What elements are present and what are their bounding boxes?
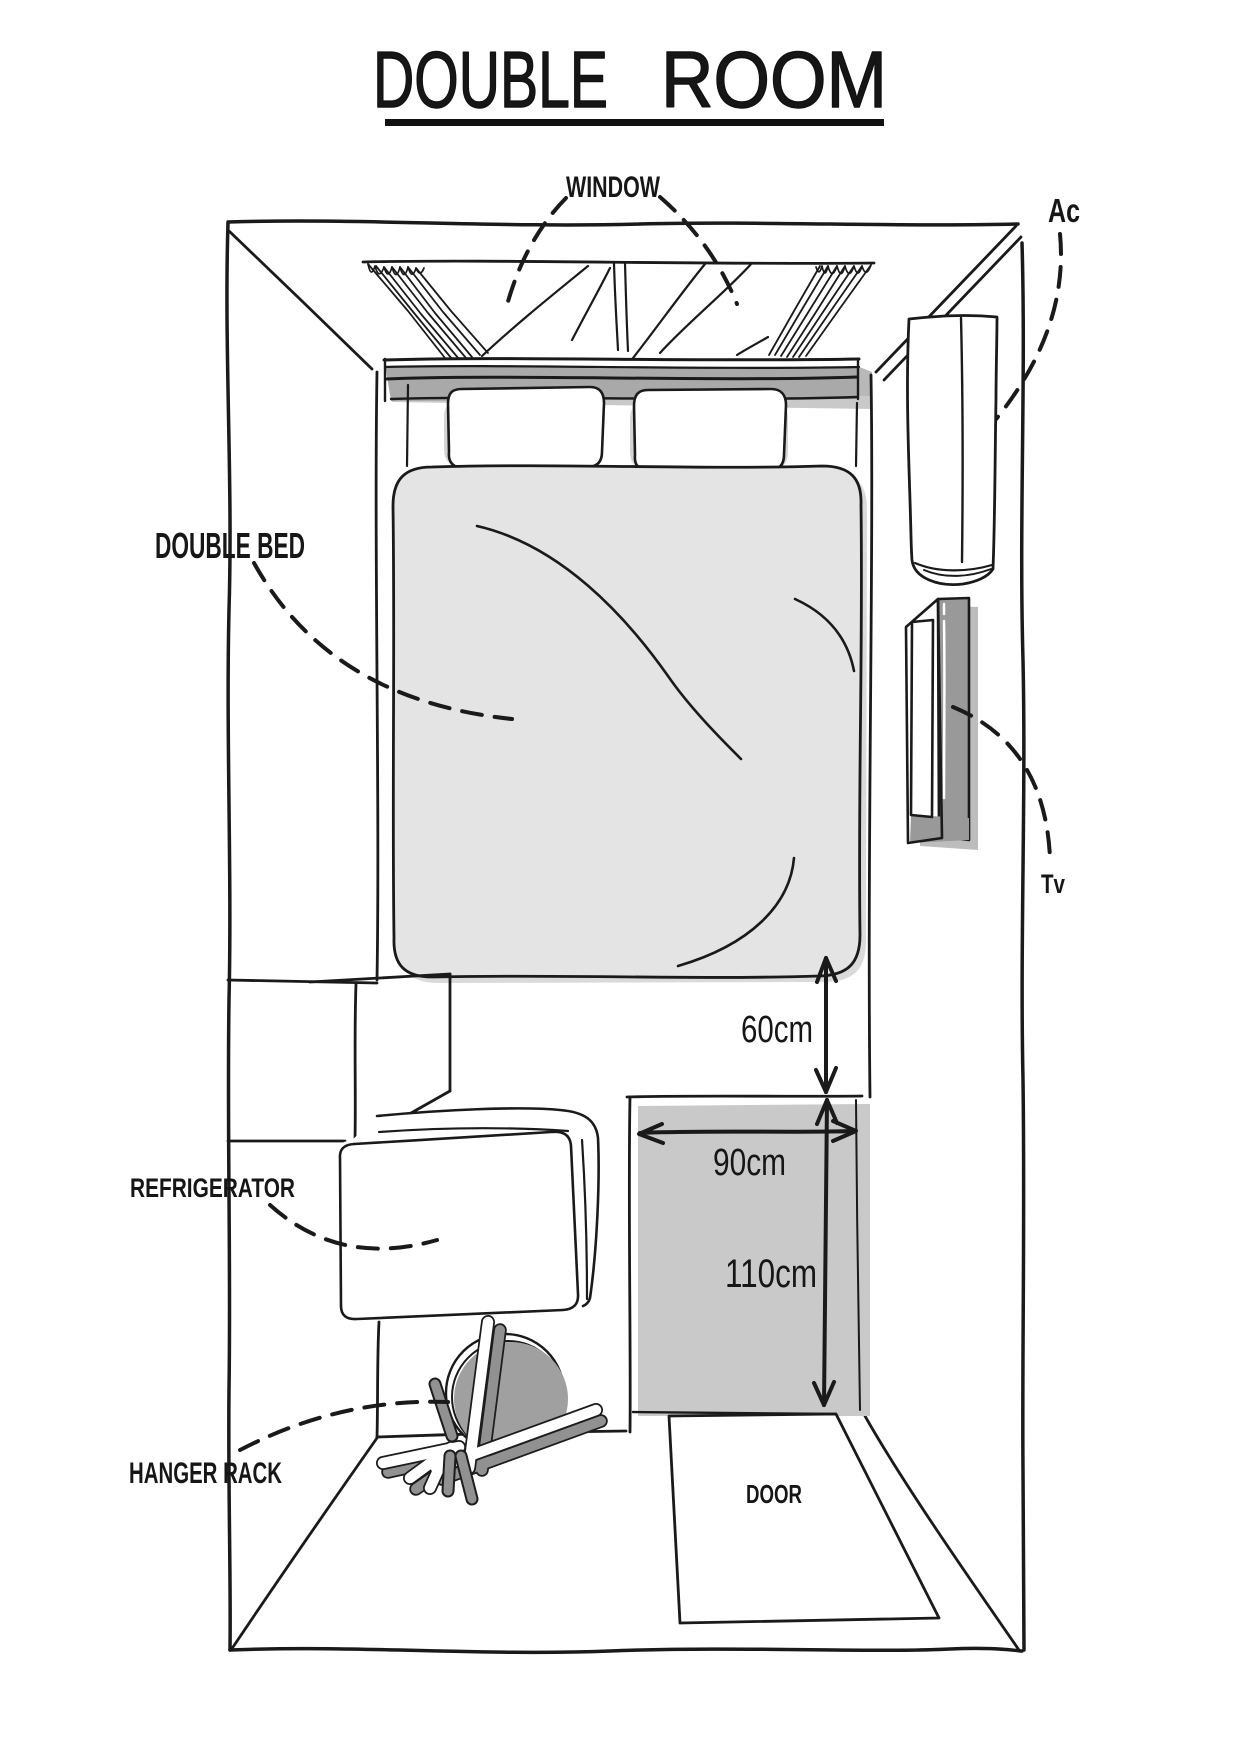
svg-text:DOUBLE: DOUBLE <box>373 35 608 124</box>
svg-text:DOUBLE BED: DOUBLE BED <box>155 525 305 566</box>
svg-text:HANGER RACK: HANGER RACK <box>129 1457 282 1490</box>
svg-text:WINDOW: WINDOW <box>566 171 660 204</box>
svg-text:60cm: 60cm <box>741 1009 813 1051</box>
svg-text:ROOM: ROOM <box>661 35 887 124</box>
svg-text:Ac: Ac <box>1048 192 1080 229</box>
svg-text:90cm: 90cm <box>713 1142 786 1184</box>
svg-text:REFRIGERATOR: REFRIGERATOR <box>130 1173 295 1203</box>
svg-text:Tv: Tv <box>1041 869 1065 899</box>
svg-text:DOOR: DOOR <box>746 1479 802 1509</box>
svg-text:110cm: 110cm <box>725 1252 817 1296</box>
